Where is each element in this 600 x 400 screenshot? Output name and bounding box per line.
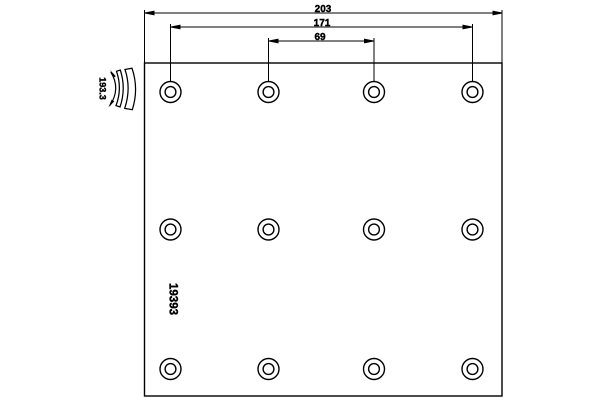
svg-text:69: 69 — [314, 32, 326, 43]
svg-text:19393: 19393 — [166, 283, 178, 315]
svg-text:171: 171 — [314, 18, 331, 29]
svg-text:193.3: 193.3 — [98, 77, 108, 100]
svg-text:203: 203 — [315, 4, 332, 15]
